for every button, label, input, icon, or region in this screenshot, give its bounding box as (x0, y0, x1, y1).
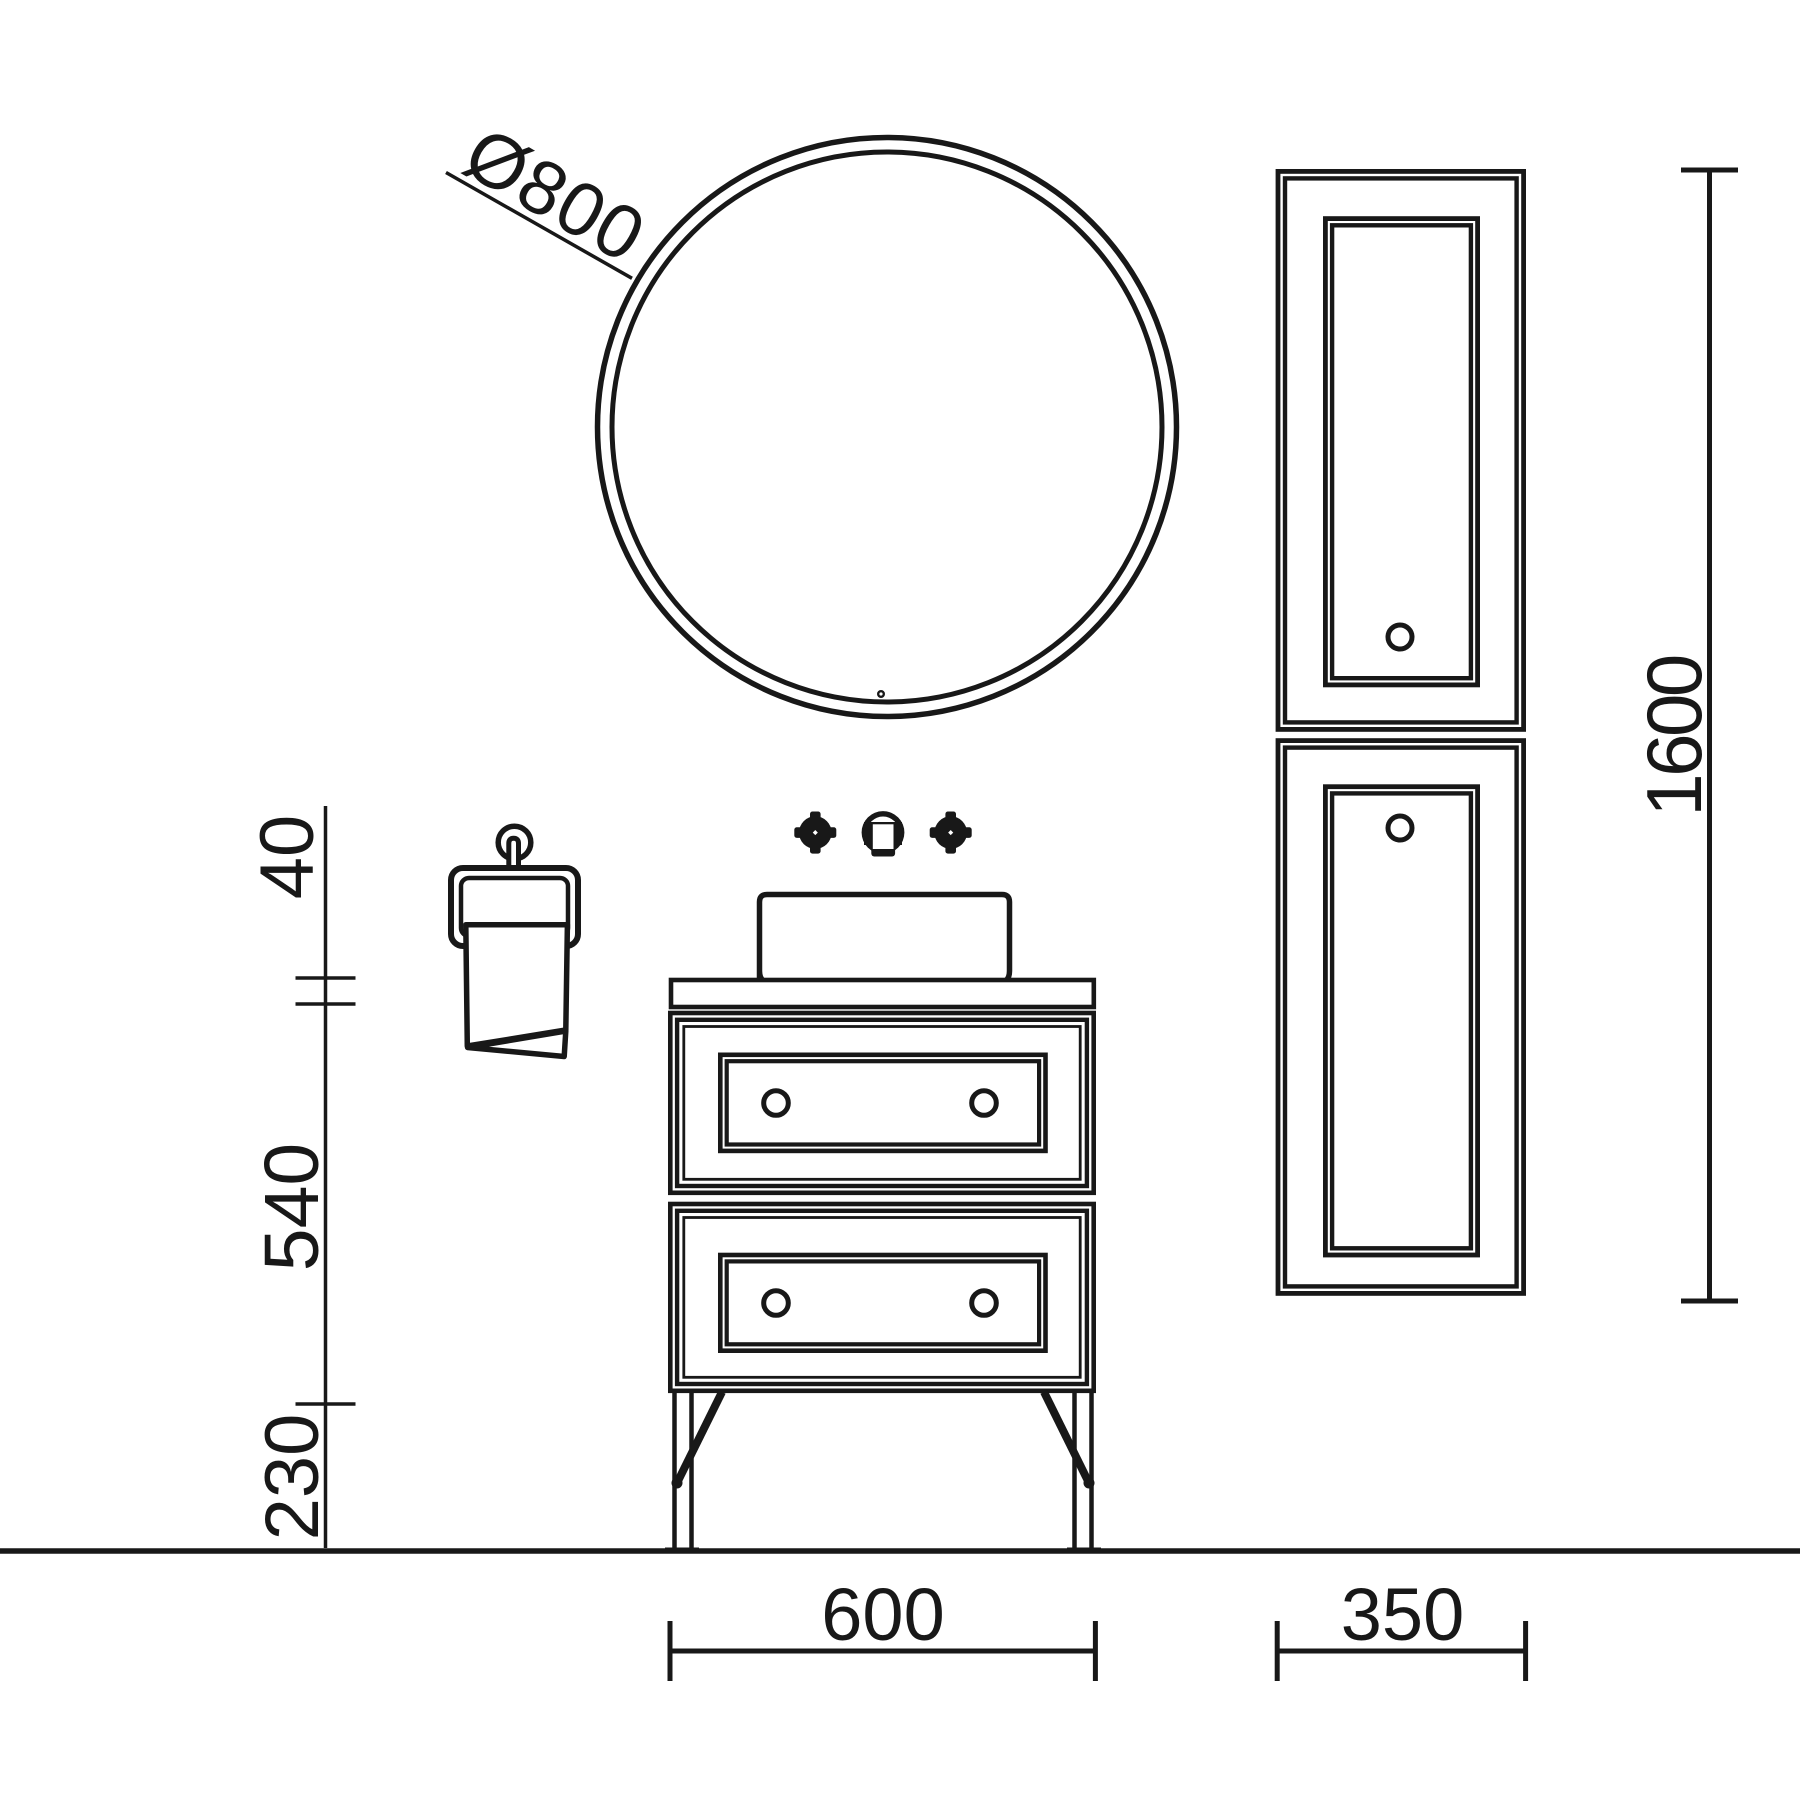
svg-text:230: 230 (250, 1414, 335, 1541)
svg-text:600: 600 (821, 1573, 944, 1656)
svg-text:540: 540 (249, 1143, 335, 1271)
svg-text:40: 40 (245, 815, 330, 900)
svg-text:350: 350 (1341, 1573, 1464, 1656)
svg-text:1600: 1600 (1630, 656, 1718, 817)
